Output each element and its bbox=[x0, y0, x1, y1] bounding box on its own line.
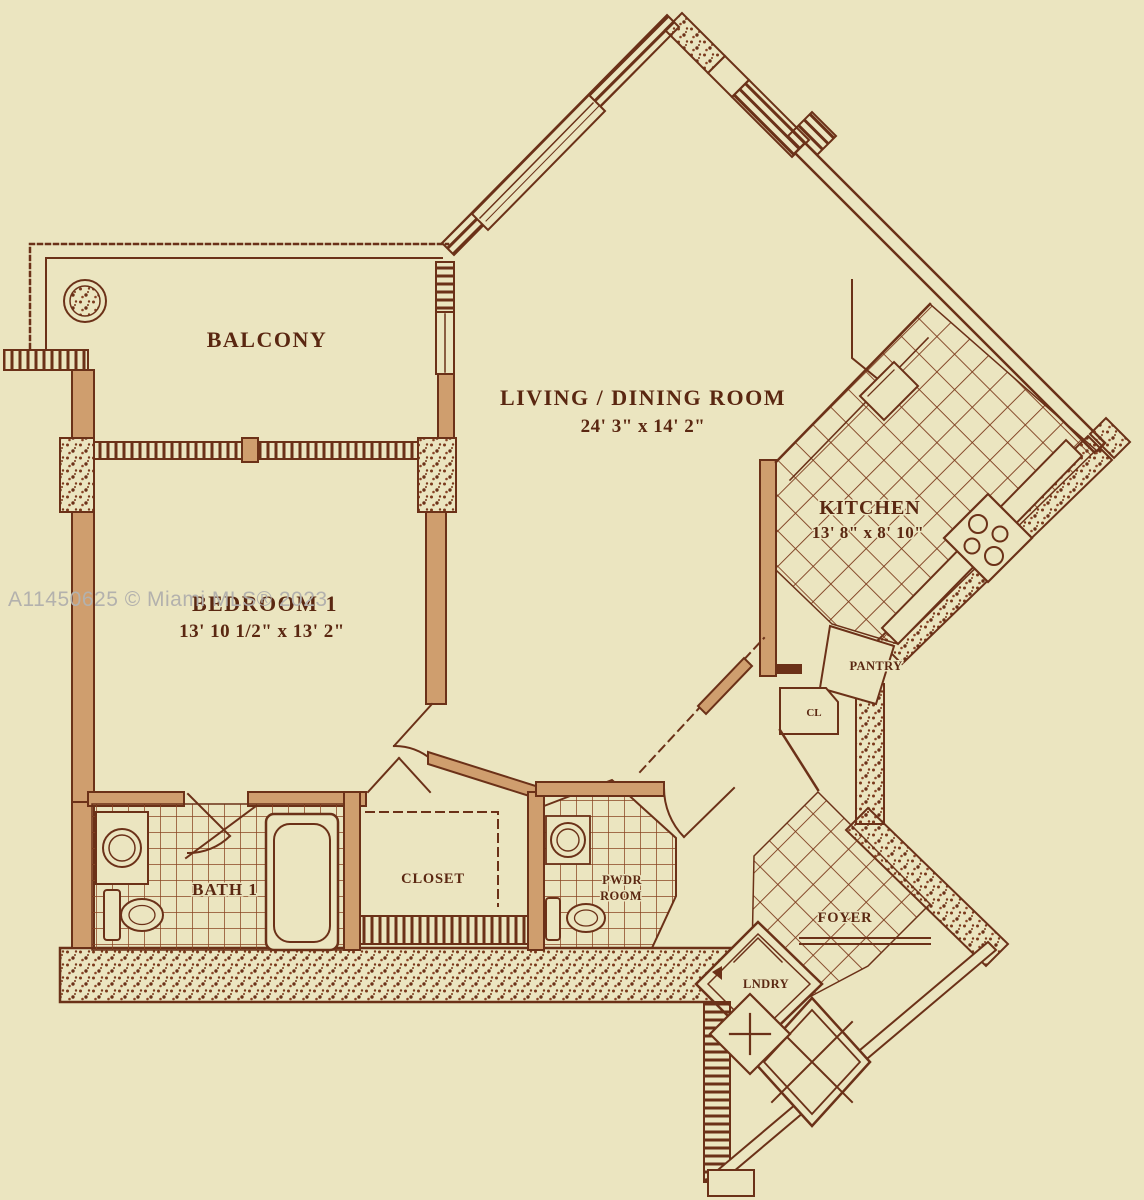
watermark-text: A11450625 © Miami MLS® 2023 bbox=[8, 588, 328, 611]
powder-sink-icon bbox=[546, 816, 590, 864]
powder-room-label-line1: PWDR bbox=[602, 873, 642, 887]
floorplan-image: BALCONY LIVING / DINING ROOM 24' 3" x 14… bbox=[0, 0, 1144, 1200]
bedroom-window-2 bbox=[258, 442, 418, 459]
floorplan-page: BALCONY LIVING / DINING ROOM 24' 3" x 14… bbox=[0, 0, 1144, 1200]
bedroom-1-dimensions: 13' 10 1/2" x 13' 2" bbox=[179, 621, 345, 642]
kitchen-left-wall bbox=[760, 460, 776, 676]
closet-bottom-wall bbox=[360, 916, 540, 944]
bath-1-label: BATH 1 bbox=[192, 880, 258, 899]
kitchen-label: KITCHEN bbox=[819, 497, 920, 519]
cl-label: CL bbox=[806, 707, 821, 719]
bedroom-window-1 bbox=[94, 442, 242, 459]
living-window-upper bbox=[436, 262, 454, 312]
bedroom-right-wall bbox=[426, 512, 446, 704]
wall-segment bbox=[72, 370, 94, 438]
balcony-left-stub-wall bbox=[4, 350, 88, 370]
laundry-label: LNDRY bbox=[743, 977, 789, 991]
powder-top-wall bbox=[536, 782, 664, 796]
kitchen-dimensions: 13' 8" x 8' 10" bbox=[812, 523, 924, 542]
bath-sink-icon bbox=[96, 812, 148, 884]
bathtub-icon bbox=[266, 814, 338, 950]
wall-segment bbox=[438, 374, 454, 438]
closet-right-wall bbox=[528, 792, 544, 950]
bath-right-wall bbox=[344, 792, 360, 950]
bath-left-wall bbox=[72, 802, 94, 948]
concrete-column-left bbox=[60, 438, 94, 512]
living-dining-dimensions: 24' 3" x 14' 2" bbox=[581, 416, 706, 437]
closet-label: CLOSET bbox=[401, 871, 465, 887]
concrete-wall-bottom bbox=[60, 948, 732, 1002]
balcony-label: BALCONY bbox=[207, 327, 328, 352]
powder-room-label-line2: ROOM bbox=[600, 889, 642, 903]
bath-1-room bbox=[92, 792, 360, 950]
pantry-label: PANTRY bbox=[849, 659, 902, 673]
foyer-label: FOYER bbox=[818, 910, 873, 926]
window-pier bbox=[242, 438, 258, 462]
bedroom-left-wall bbox=[72, 512, 94, 802]
concrete-column-right bbox=[418, 438, 456, 512]
concrete-wall-vertical bbox=[856, 684, 884, 824]
balcony-table-icon bbox=[64, 280, 106, 322]
living-dining-label: LIVING / DINING ROOM bbox=[500, 385, 786, 410]
core-corner-block bbox=[708, 1170, 754, 1196]
kitchen-threshold bbox=[776, 664, 802, 674]
